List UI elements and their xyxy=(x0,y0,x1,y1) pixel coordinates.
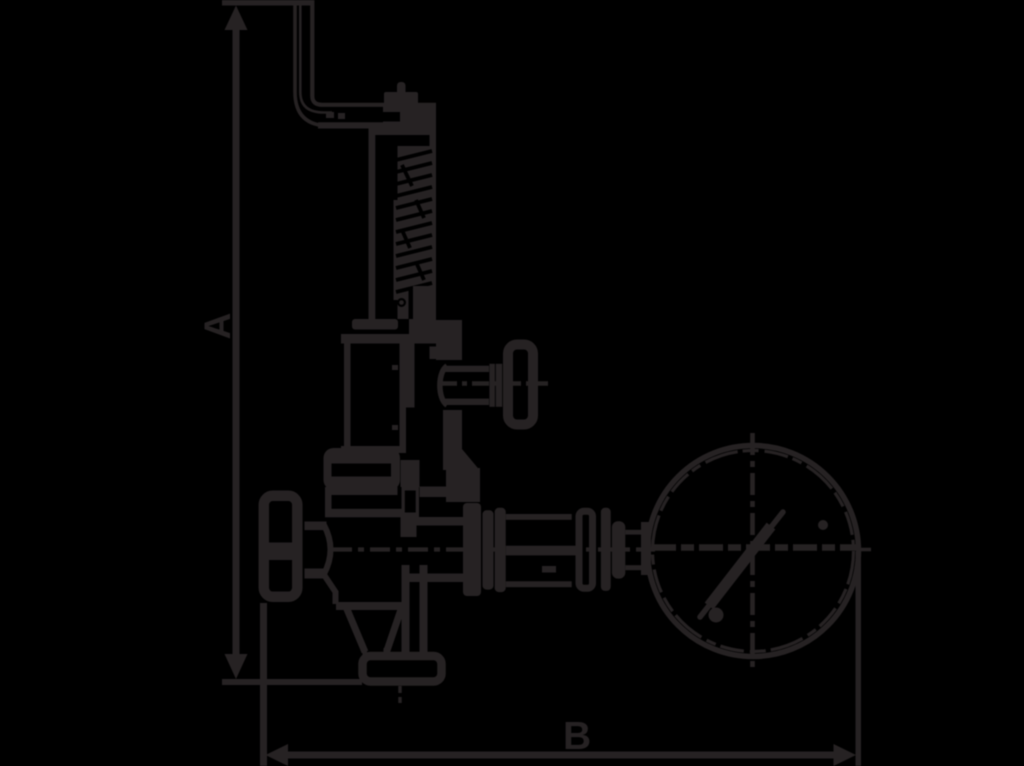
svg-text:A: A xyxy=(197,313,238,340)
svg-text:B: B xyxy=(563,715,591,758)
